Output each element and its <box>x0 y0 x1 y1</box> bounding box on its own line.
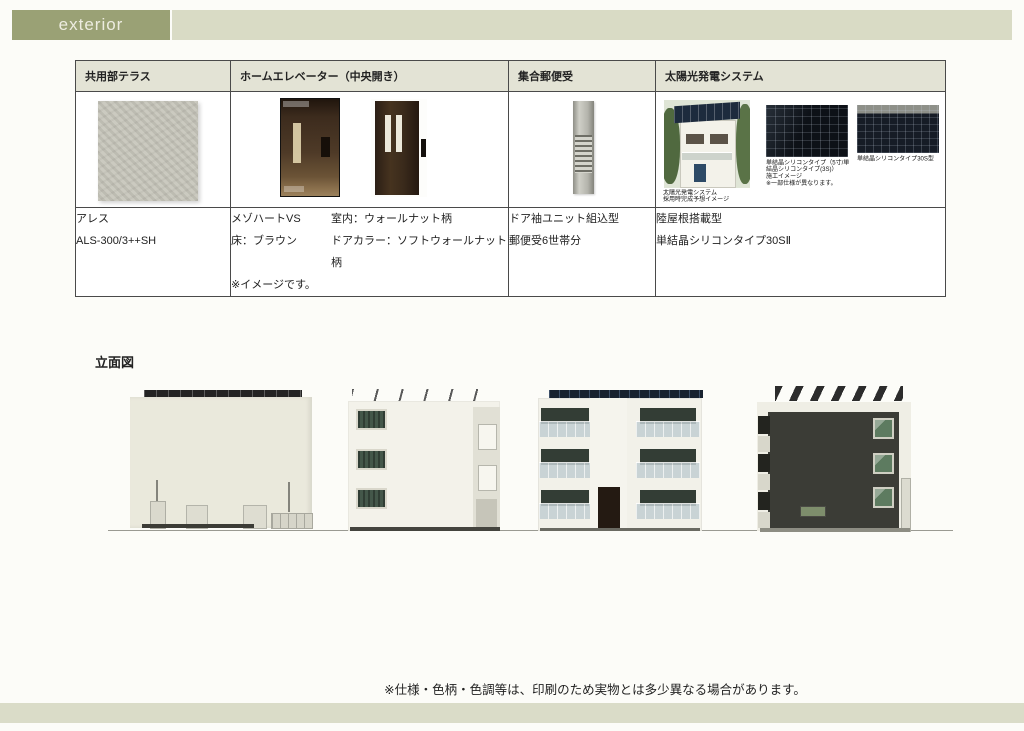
side-balcony-block <box>758 474 770 490</box>
side-balcony-block <box>758 454 770 472</box>
elevator-image-note: ※イメージです。 <box>231 274 508 296</box>
col-header-terrace: 共用部テラス <box>76 61 231 92</box>
pipe <box>901 478 911 532</box>
solar-image-cell: 太陽光発電システム 採用時完成予想イメージ 単結晶シリコンタイプ（5寸/単 結晶… <box>656 92 946 208</box>
building-base <box>142 524 254 528</box>
solar-spec-text: 陸屋根搭載型 単結晶シリコンタイプ30SⅡ <box>656 208 946 297</box>
terrace-image-cell <box>76 92 231 208</box>
elevator-product-name: メゾハートVS <box>231 208 317 230</box>
balcony-door <box>478 465 497 491</box>
pipe <box>156 480 158 502</box>
elevator-interior-spec: 室内：ウォールナット柄 <box>331 208 452 230</box>
col-header-solar: 太陽光発電システム <box>656 61 946 92</box>
header-bar <box>172 10 1012 40</box>
solar-panel-closeup-image <box>857 105 939 153</box>
balcony-door <box>478 424 497 450</box>
window <box>875 455 892 472</box>
house-window <box>710 134 728 144</box>
window <box>358 411 385 428</box>
window <box>875 420 892 437</box>
balcony-glass-railing <box>539 421 591 437</box>
elevator-interior-image <box>281 99 339 196</box>
col-header-elevator: ホームエレベーター（中央開き） <box>231 61 509 92</box>
page-tab-exterior: exterior <box>12 10 170 40</box>
spec-table: 共用部テラス ホームエレベーター（中央開き） 集合郵便受 太陽光発電システム <box>75 60 946 297</box>
building-base <box>540 528 700 531</box>
elevator-image-cell <box>231 92 509 208</box>
exterior-spec-page: exterior 共用部テラス ホームエレベーター（中央開き） 集合郵便受 太陽… <box>0 0 1024 731</box>
disclaimer-note: ※仕様・色柄・色調等は、印刷のため実物とは多少異なる場合があります。 <box>160 679 1024 698</box>
solar-caption-3: 単結晶シリコンタイプ30S型 <box>857 156 943 163</box>
footer-bar <box>0 703 1024 723</box>
elevator-spec-text: メゾハートVS 室内：ウォールナット柄 床：ブラウン ドアカラー：ソフトウォール… <box>231 208 509 297</box>
side-balcony-block <box>758 436 770 452</box>
rooftop-solar-supports <box>352 389 496 401</box>
solar-mount-type: 陸屋根搭載型 <box>656 208 945 230</box>
side-balcony-block <box>758 492 770 510</box>
elevator-door-image <box>371 99 427 197</box>
balcony-glass-railing <box>539 462 591 478</box>
mailbox-type: ドア袖ユニット組込型 <box>509 208 655 230</box>
mailbox-image-cell <box>509 92 656 208</box>
mailbox-capacity: 郵便受6世帯分 <box>509 230 655 252</box>
elevation-section-title: 立面図 <box>95 352 134 371</box>
window <box>358 451 385 468</box>
page-tab-label: exterior <box>59 15 124 35</box>
balcony-glass-railing <box>636 421 700 437</box>
door-window <box>385 115 391 152</box>
ground-floor-recess <box>476 499 497 528</box>
spec-table-text-row: アレス ALS-300/3++SH メゾハートVS 室内：ウォールナット柄 床：… <box>76 208 946 297</box>
building-base <box>760 528 910 532</box>
house-window <box>686 134 704 144</box>
solar-caption-1: 太陽光発電システム 採用時完成予想イメージ <box>663 190 749 204</box>
balcony-glass-railing <box>636 462 700 478</box>
terrace-product-name: アレス <box>76 208 230 230</box>
balcony-glass-railing <box>636 503 700 519</box>
door-call-panel <box>421 139 426 157</box>
rooftop-solar-strip <box>549 390 703 398</box>
balcony-glass-railing <box>539 503 591 519</box>
mailbox-slots <box>575 135 592 173</box>
entrance-door <box>598 487 620 529</box>
photo-overlay <box>284 186 304 192</box>
terrace-spec-text: アレス ALS-300/3++SH <box>76 208 231 297</box>
pipe <box>288 482 290 512</box>
rooftop-solar-panels-tilted <box>775 386 903 401</box>
window <box>875 489 892 506</box>
col-header-mailbox: 集合郵便受 <box>509 61 656 92</box>
rooftop-solar-strip <box>144 390 302 397</box>
solar-panel-type: 単結晶シリコンタイプ30SⅡ <box>656 230 945 252</box>
building-base <box>350 527 500 531</box>
elevator-control-panel <box>321 137 330 157</box>
side-balcony-block <box>758 512 770 528</box>
elevator-door-color-spec: ドアカラー：ソフトウォールナット柄 <box>331 230 508 274</box>
mailbox-spec-text: ドア袖ユニット組込型 郵便受6世帯分 <box>509 208 656 297</box>
house-entry <box>694 164 706 182</box>
side-balcony-block <box>758 416 770 434</box>
door-window <box>396 115 402 152</box>
house-balcony <box>682 152 732 160</box>
spec-table-image-row: 太陽光発電システム 採用時完成予想イメージ 単結晶シリコンタイプ（5寸/単 結晶… <box>76 92 946 208</box>
solar-house-render-image <box>664 100 750 188</box>
photo-overlay <box>283 101 309 107</box>
mailbox-unit-image <box>573 101 594 194</box>
spec-table-header-row: 共用部テラス ホームエレベーター（中央開き） 集合郵便受 太陽光発電システム <box>76 61 946 92</box>
terrace-model-number: ALS-300/3++SH <box>76 230 230 252</box>
window <box>358 490 385 507</box>
solar-caption-2: 単結晶シリコンタイプ（5寸/単 結晶シリコンタイプ(3S)） 施工イメージ ※一… <box>766 160 857 188</box>
vent-grille <box>800 506 826 517</box>
elevator-floor-spec: 床：ブラウン <box>231 230 317 274</box>
solar-panel-install-image <box>766 105 848 157</box>
elevator-lamp <box>293 123 301 163</box>
equipment-box <box>271 513 313 529</box>
terrace-tile-swatch-image <box>98 101 198 201</box>
